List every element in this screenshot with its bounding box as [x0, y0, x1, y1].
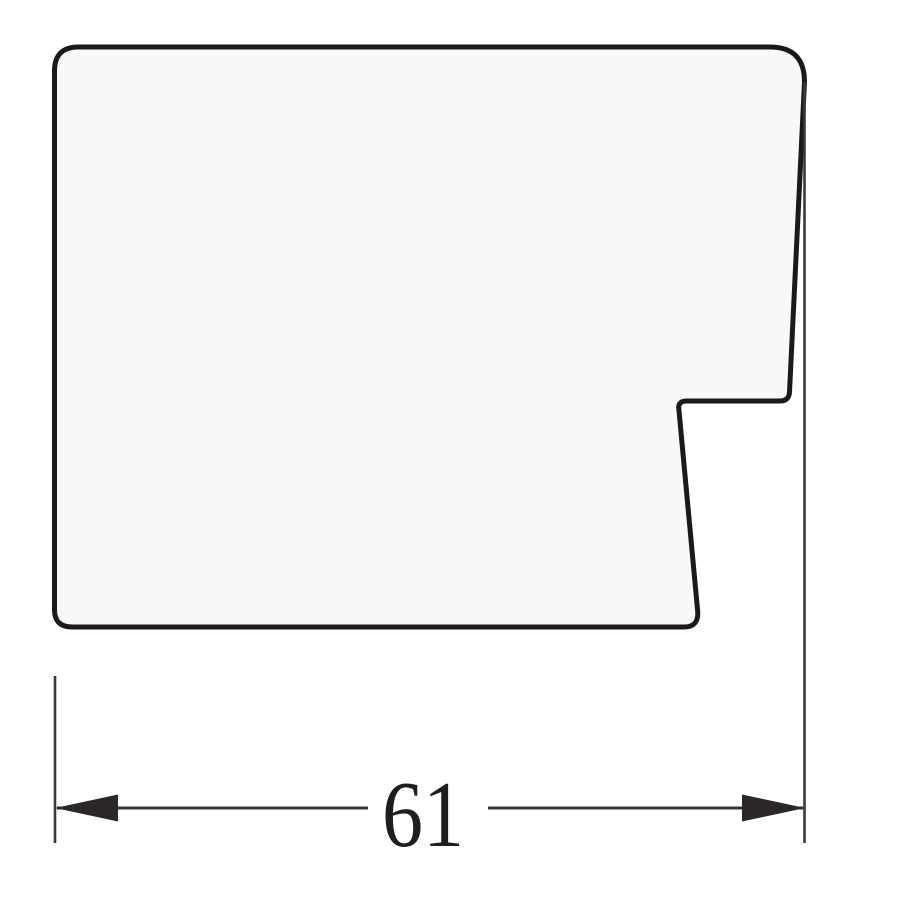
drawing-page: 61 [0, 0, 900, 900]
moulding-profile-drawing: 61 [0, 0, 900, 900]
dimension-label: 61 [382, 763, 464, 867]
moulding-profile-outline [55, 47, 805, 627]
